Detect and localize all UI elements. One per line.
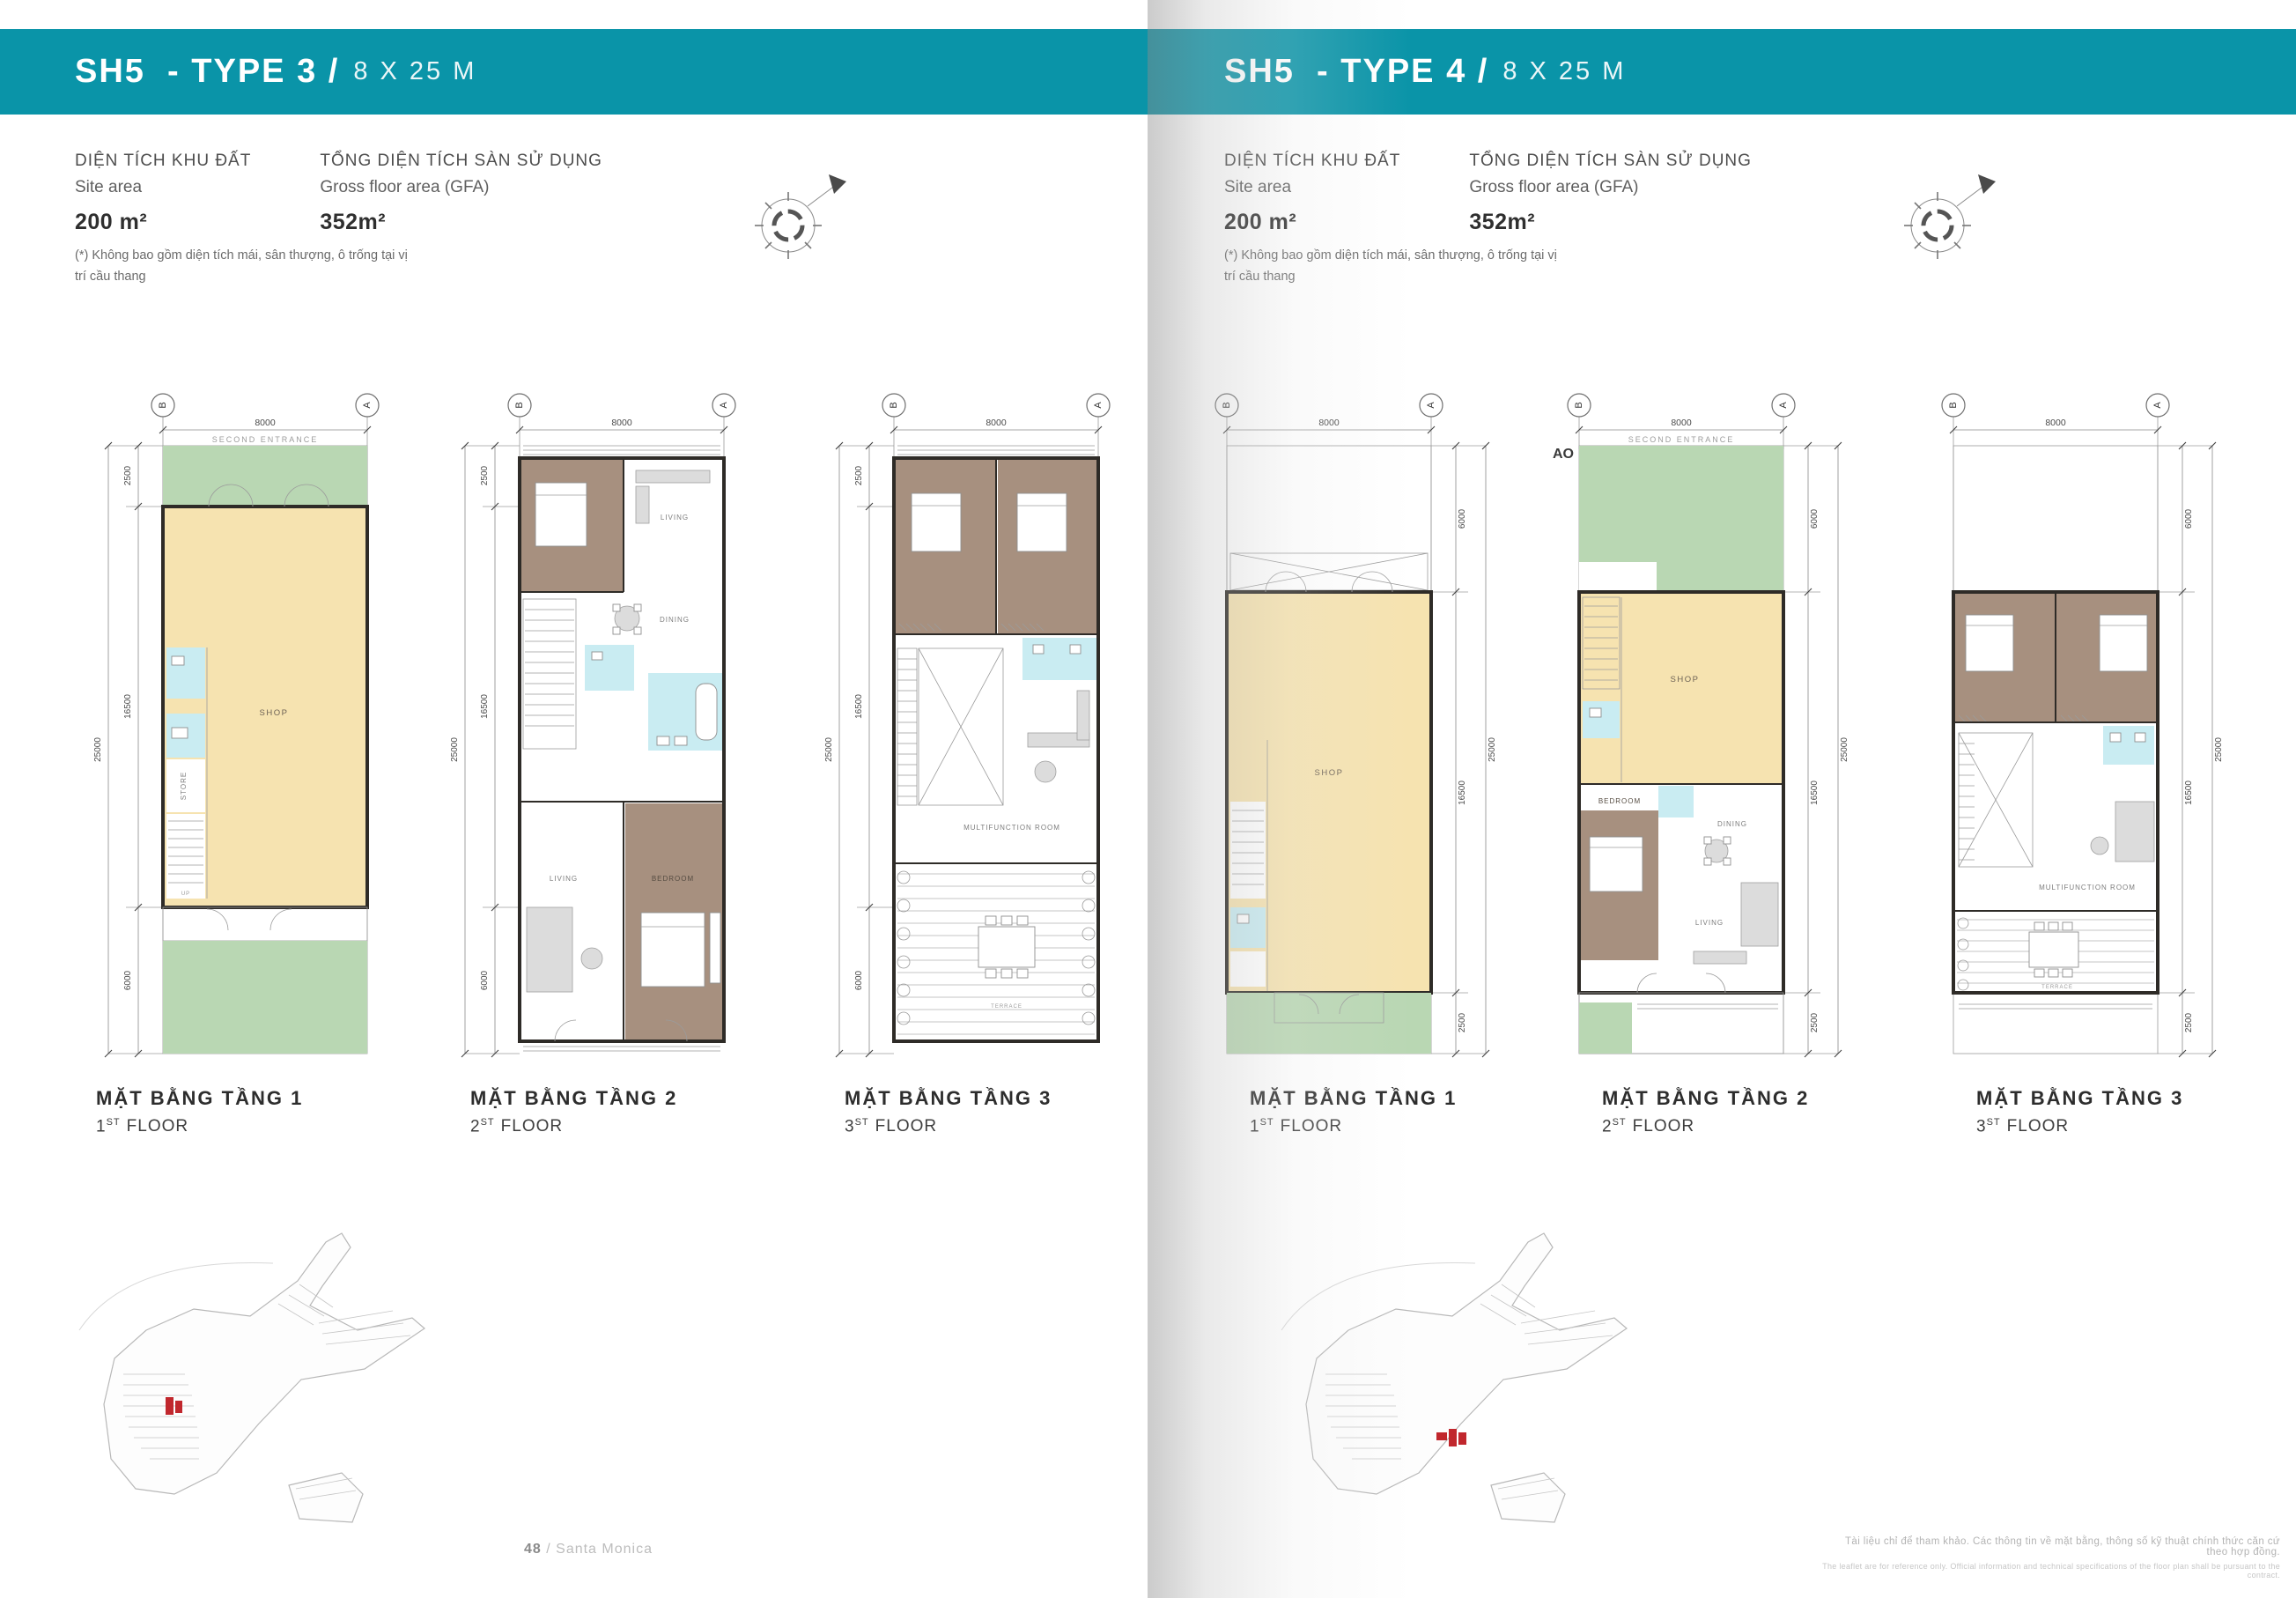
grid-bubble-b: B bbox=[889, 402, 899, 408]
grid-bubble-b: B bbox=[1574, 402, 1584, 408]
plan-name-vi: MẶT BẰNG TẦNG 3 bbox=[1976, 1087, 2235, 1110]
svg-text:8000: 8000 bbox=[2045, 418, 2066, 428]
dim-right: 6000 16500 2500 25000 bbox=[1431, 442, 1497, 1057]
page-type4: SH5 - TYPE 4 / 8 X 25 M DIỆN TÍCH KHU ĐẤ… bbox=[1148, 0, 2296, 1598]
north-arrow bbox=[829, 174, 846, 194]
page-title: SH5 - TYPE 3 / 8 X 25 M bbox=[75, 29, 476, 115]
dim-seg-a: 2500 bbox=[123, 465, 133, 485]
plan-label: MẶT BẰNG TẦNG 1 1STFLOOR bbox=[1200, 1087, 1509, 1136]
plan-type4-floor2: B A 8000 SECOND ENTRANCE AO 6000 16500 2… bbox=[1553, 388, 1861, 1136]
compass-north-icon bbox=[742, 167, 857, 282]
page-footer: 48 / Santa Monica bbox=[524, 1542, 653, 1557]
bedroom-label: BEDROOM bbox=[1598, 797, 1641, 805]
brochure-spread: SH5 - TYPE 3 / 8 X 25 M DIỆN TÍCH KHU ĐẤ… bbox=[0, 0, 2296, 1598]
terrace-label: TERRACE bbox=[2041, 985, 2073, 990]
site-area-label-en: Site area bbox=[75, 174, 251, 201]
page-number: 48 bbox=[524, 1542, 542, 1557]
floor-plan-type3-level3-drawing: B A 8000 2500 16500 6000 25000 bbox=[806, 388, 1114, 1075]
project-name: Santa Monica bbox=[556, 1542, 653, 1557]
plan-type3-floor2: B A 8000 2500 16500 6000 25000 bbox=[432, 388, 740, 1136]
dim-left: 2500 16500 6000 25000 bbox=[93, 442, 163, 1057]
svg-text:2500: 2500 bbox=[480, 465, 490, 485]
dim-right: 6000 16500 2500 25000 bbox=[2158, 442, 2224, 1057]
site-area-value: 200 m² bbox=[75, 210, 251, 235]
plan-label: MẶT BẰNG TẦNG 1 1STFLOOR bbox=[75, 1087, 383, 1136]
shop-label: SHOP bbox=[260, 708, 289, 718]
svg-text:25000: 25000 bbox=[1488, 737, 1497, 762]
title-size: 8 X 25 M bbox=[1502, 57, 1626, 86]
grid-bubble-a: A bbox=[2152, 402, 2163, 409]
terrace-label: TERRACE bbox=[991, 1004, 1022, 1010]
svg-text:8000: 8000 bbox=[986, 418, 1007, 428]
fineprint-en: The leaflet are for reference only. Offi… bbox=[1822, 1562, 2280, 1580]
dim-width: 8000 bbox=[611, 418, 632, 428]
gfa-label-en: Gross floor area (GFA) bbox=[1469, 174, 1752, 201]
site-area-label-en: Site area bbox=[1224, 174, 1400, 201]
grid-bubble-a: A bbox=[1426, 402, 1436, 409]
bedroom-bottom-right: BEDROOM bbox=[625, 803, 722, 1039]
ao-label: AO bbox=[1553, 447, 1574, 462]
dim-right: 6000 16500 2500 25000 bbox=[1783, 442, 1849, 1057]
plan-name-vi: MẶT BẰNG TẦNG 1 bbox=[96, 1087, 383, 1110]
svg-text:16500: 16500 bbox=[2184, 781, 2194, 805]
multifunction-label: MULTIFUNCTION ROOM bbox=[2039, 884, 2136, 891]
plan-name-en: 2STFLOOR bbox=[470, 1117, 740, 1136]
gfa-label-vi: TỔNG DIỆN TÍCH SÀN SỬ DỤNG bbox=[1469, 148, 1752, 174]
site-area-value: 200 m² bbox=[1224, 210, 1400, 235]
plan-label: MẶT BẰNG TẦNG 2 2STFLOOR bbox=[1553, 1087, 1861, 1136]
dim-left: 2500 16500 6000 25000 bbox=[824, 442, 894, 1057]
floor-plan-type3-level2-drawing: B A 8000 2500 16500 6000 25000 bbox=[432, 388, 740, 1075]
grid-bubble-b: B bbox=[514, 402, 525, 408]
svg-text:2500: 2500 bbox=[2184, 1012, 2194, 1032]
title-size: 8 X 25 M bbox=[353, 57, 476, 86]
shop-label: SHOP bbox=[1671, 675, 1700, 684]
bedrooms-top bbox=[894, 460, 1098, 634]
living-label: LIVING bbox=[1695, 919, 1724, 927]
footnote: (*) Không bao gồm diện tích mái, sân thư… bbox=[75, 245, 408, 287]
dim-seg-b: 16500 bbox=[123, 694, 133, 719]
title-main: SH5 - TYPE 3 / bbox=[75, 53, 339, 91]
plan-type4-floor1: B A 8000 6000 16500 2500 25000 bbox=[1200, 388, 1509, 1136]
plan-name-en: 3STFLOOR bbox=[845, 1117, 1114, 1136]
site-area-label-vi: DIỆN TÍCH KHU ĐẤT bbox=[1224, 148, 1400, 174]
grid-bubble-a: A bbox=[719, 402, 729, 409]
svg-text:16500: 16500 bbox=[1458, 781, 1467, 805]
plan-name-vi: MẶT BẰNG TẦNG 2 bbox=[470, 1087, 740, 1110]
bedroom: BEDROOM bbox=[1581, 797, 1658, 960]
gfa-label-vi: TỔNG DIỆN TÍCH SÀN SỬ DỤNG bbox=[320, 148, 602, 174]
site-area-block: DIỆN TÍCH KHU ĐẤT Site area 200 m² bbox=[75, 148, 251, 235]
grid-bubble-a: A bbox=[1778, 402, 1789, 409]
plan-label: MẶT BẰNG TẦNG 3 3STFLOOR bbox=[1927, 1087, 2235, 1136]
gfa-block: TỔNG DIỆN TÍCH SÀN SỬ DỤNG Gross floor a… bbox=[320, 148, 602, 235]
compass-north-icon bbox=[1892, 167, 2006, 282]
masterplan-key-map bbox=[1264, 1224, 1651, 1533]
plan-type3-floor3: B A 8000 2500 16500 6000 25000 bbox=[806, 388, 1114, 1136]
living2-label: LIVING bbox=[550, 875, 578, 883]
entrance-doors bbox=[1266, 572, 1392, 592]
plan-name-vi: MẶT BẰNG TẦNG 2 bbox=[1602, 1087, 1861, 1110]
grid-bubble-b: B bbox=[158, 402, 168, 408]
dining-label: DINING bbox=[1717, 820, 1747, 828]
living-label: LIVING bbox=[661, 514, 689, 522]
void-and-stairs bbox=[1959, 733, 2033, 867]
dim-width: 8000 bbox=[255, 418, 276, 428]
gfa-value: 352m² bbox=[320, 210, 602, 235]
floor-plan-type4-level2-drawing: B A 8000 SECOND ENTRANCE AO 6000 16500 2… bbox=[1553, 388, 1861, 1075]
grid-bubble-a: A bbox=[362, 402, 373, 409]
bathroom bbox=[1022, 638, 1096, 680]
second-entrance-label: SECOND ENTRANCE bbox=[1628, 435, 1735, 444]
floor-plan-type4-level3-drawing: B A 8000 6000 16500 2500 25000 bbox=[1927, 388, 2235, 1075]
stairs: UP bbox=[166, 814, 205, 899]
bedrooms-top bbox=[1953, 594, 2158, 722]
plan-name-vi: MẶT BẰNG TẦNG 3 bbox=[845, 1087, 1114, 1110]
gfa-label-en: Gross floor area (GFA) bbox=[320, 174, 602, 201]
plan-type3-floor1: B A 8000 SECOND ENTRANCE 2500 16500 6000 bbox=[75, 388, 383, 1136]
info-block: DIỆN TÍCH KHU ĐẤT Site area 200 m² TỔNG … bbox=[1224, 148, 1752, 235]
svg-text:2500: 2500 bbox=[854, 465, 864, 485]
title-main: SH5 - TYPE 4 / bbox=[1224, 53, 1488, 91]
front-canopy bbox=[1230, 553, 1428, 590]
second-entrance-label: SECOND ENTRANCE bbox=[212, 435, 319, 444]
terrace: TERRACE bbox=[1953, 911, 2158, 990]
bedroom-top-left bbox=[520, 460, 624, 592]
plan-name-en: 1STFLOOR bbox=[96, 1117, 383, 1136]
bathroom bbox=[2103, 726, 2154, 765]
page-title: SH5 - TYPE 4 / 8 X 25 M bbox=[1224, 29, 1626, 115]
dim-left: 2500 16500 6000 25000 bbox=[450, 442, 520, 1057]
grid-bubble-b: B bbox=[1948, 402, 1959, 408]
multifunction-label: MULTIFUNCTION ROOM bbox=[963, 824, 1060, 832]
svg-text:6000: 6000 bbox=[480, 970, 490, 990]
shop-label: SHOP bbox=[1315, 768, 1344, 778]
plan-label: MẶT BẰNG TẦNG 3 3STFLOOR bbox=[806, 1087, 1114, 1136]
svg-text:2500: 2500 bbox=[1810, 1012, 1820, 1032]
plan-name-en: 1STFLOOR bbox=[1250, 1117, 1509, 1136]
info-block: DIỆN TÍCH KHU ĐẤT Site area 200 m² TỔNG … bbox=[75, 148, 602, 235]
svg-text:25000: 25000 bbox=[450, 737, 460, 762]
store-label: STORE bbox=[180, 772, 188, 800]
fineprint-vi: Tài liệu chỉ để tham khảo. Các thông tin… bbox=[1822, 1536, 2280, 1557]
dim-seg-c: 6000 bbox=[123, 970, 133, 990]
grid-bubble-a: A bbox=[1093, 402, 1104, 409]
svg-text:6000: 6000 bbox=[1458, 508, 1467, 529]
masterplan-key-map bbox=[62, 1224, 449, 1533]
footnote: (*) Không bao gồm diện tích mái, sân thư… bbox=[1224, 245, 1557, 287]
svg-text:6000: 6000 bbox=[854, 970, 864, 990]
svg-text:6000: 6000 bbox=[1810, 508, 1820, 529]
dining-label: DINING bbox=[660, 616, 690, 624]
svg-text:25000: 25000 bbox=[824, 737, 834, 762]
plan-name-en: 3STFLOOR bbox=[1976, 1117, 2235, 1136]
plan-name-vi: MẶT BẰNG TẦNG 1 bbox=[1250, 1087, 1509, 1110]
grid-bubble-b: B bbox=[1222, 402, 1232, 408]
dim-total: 25000 bbox=[93, 737, 103, 762]
plan-label: MẶT BẰNG TẦNG 2 2STFLOOR bbox=[432, 1087, 740, 1136]
plan-name-en: 2STFLOOR bbox=[1602, 1117, 1861, 1136]
north-arrow bbox=[1978, 174, 1996, 194]
svg-text:2500: 2500 bbox=[1458, 1012, 1467, 1032]
gfa-block: TỔNG DIỆN TÍCH SÀN SỬ DỤNG Gross floor a… bbox=[1469, 148, 1752, 235]
site-area-block: DIỆN TÍCH KHU ĐẤT Site area 200 m² bbox=[1224, 148, 1400, 235]
stairs-up-label: UP bbox=[181, 891, 190, 897]
svg-text:25000: 25000 bbox=[2214, 737, 2224, 762]
multifunction-area: MULTIFUNCTION ROOM bbox=[2039, 802, 2154, 891]
svg-text:16500: 16500 bbox=[854, 694, 864, 719]
svg-text:8000: 8000 bbox=[1318, 418, 1340, 428]
svg-text:16500: 16500 bbox=[1810, 781, 1820, 805]
floor-plan-type4-level1-drawing: B A 8000 6000 16500 2500 25000 bbox=[1200, 388, 1509, 1075]
site-area-label-vi: DIỆN TÍCH KHU ĐẤT bbox=[75, 148, 251, 174]
wc-center bbox=[585, 645, 634, 691]
svg-text:6000: 6000 bbox=[2184, 508, 2194, 529]
bedroom-label: BEDROOM bbox=[652, 875, 694, 883]
page-type3: SH5 - TYPE 3 / 8 X 25 M DIỆN TÍCH KHU ĐẤ… bbox=[0, 0, 1148, 1598]
plan-type4-floor3: B A 8000 6000 16500 2500 25000 bbox=[1927, 388, 2235, 1136]
legal-fineprint: Tài liệu chỉ để tham khảo. Các thông tin… bbox=[1822, 1536, 2280, 1580]
floor-plan-type3-level1-drawing: B A 8000 SECOND ENTRANCE 2500 16500 6000 bbox=[75, 388, 383, 1075]
master-bath bbox=[648, 673, 722, 751]
svg-text:8000: 8000 bbox=[1671, 418, 1692, 428]
svg-text:25000: 25000 bbox=[1840, 737, 1849, 762]
gfa-value: 352m² bbox=[1469, 210, 1752, 235]
svg-text:16500: 16500 bbox=[480, 694, 490, 719]
